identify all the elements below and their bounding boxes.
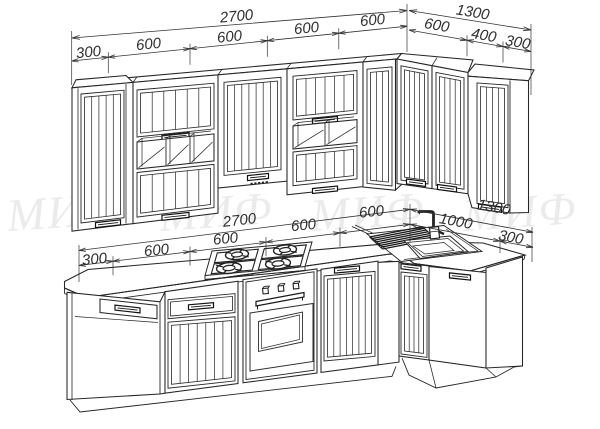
svg-text:600: 600 xyxy=(290,216,317,236)
svg-text:300: 300 xyxy=(81,250,108,270)
svg-text:300: 300 xyxy=(75,43,102,63)
svg-text:600: 600 xyxy=(293,19,320,39)
svg-text:600: 600 xyxy=(358,202,385,222)
svg-text:600: 600 xyxy=(135,35,162,55)
svg-text:600: 600 xyxy=(212,229,239,249)
svg-text:2700: 2700 xyxy=(218,6,254,26)
svg-text:600: 600 xyxy=(143,241,170,261)
svg-text:600: 600 xyxy=(359,11,386,31)
svg-text:600: 600 xyxy=(216,27,243,47)
